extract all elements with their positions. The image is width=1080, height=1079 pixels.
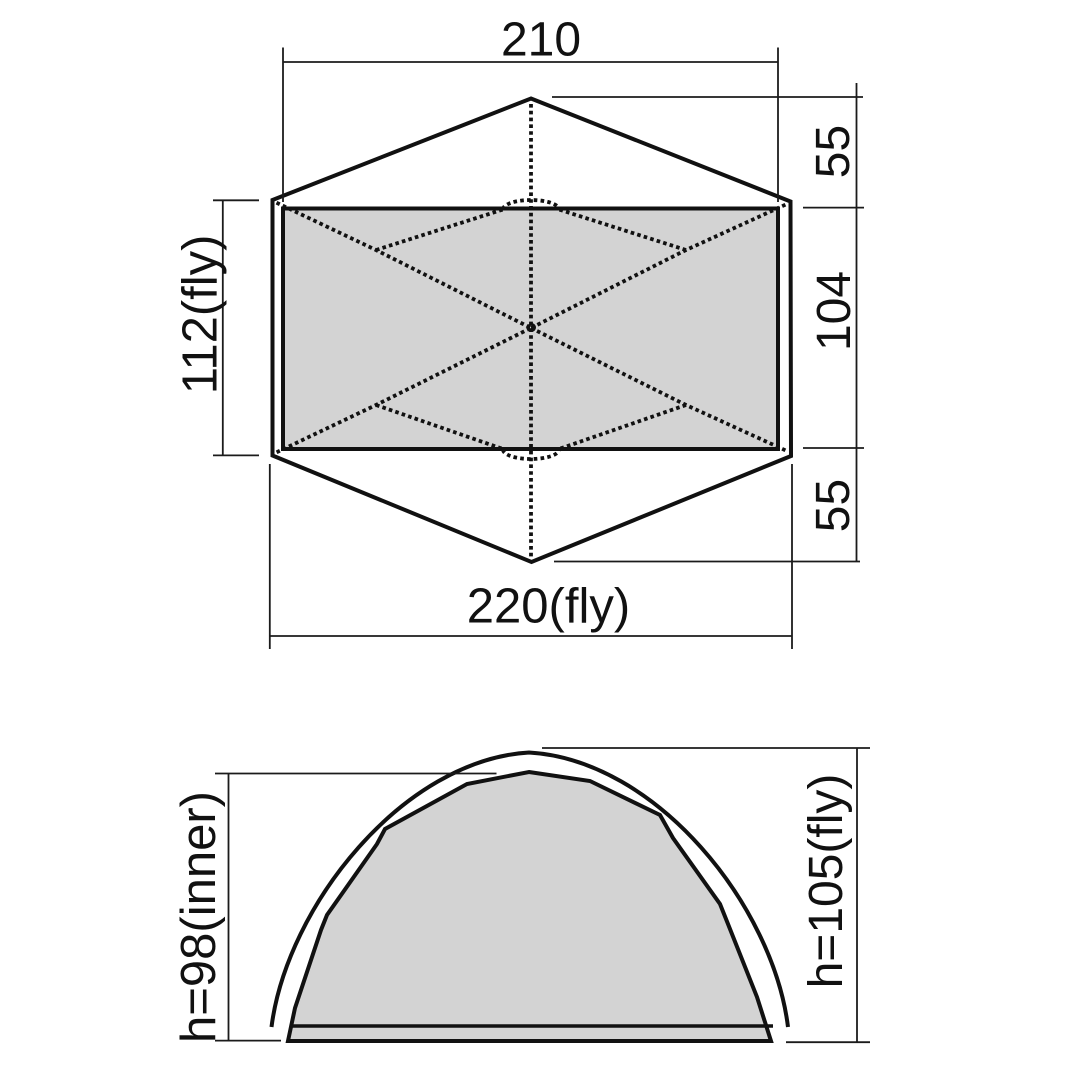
- svg-text:112(fly): 112(fly): [174, 235, 228, 395]
- svg-text:104: 104: [808, 271, 861, 351]
- svg-text:h=98(inner): h=98(inner): [172, 791, 226, 1043]
- svg-text:55: 55: [807, 479, 860, 532]
- svg-text:220(fly): 220(fly): [467, 580, 630, 634]
- svg-text:210: 210: [501, 14, 581, 67]
- svg-text:h=105(fly): h=105(fly): [800, 774, 853, 989]
- svg-text:55: 55: [807, 125, 860, 178]
